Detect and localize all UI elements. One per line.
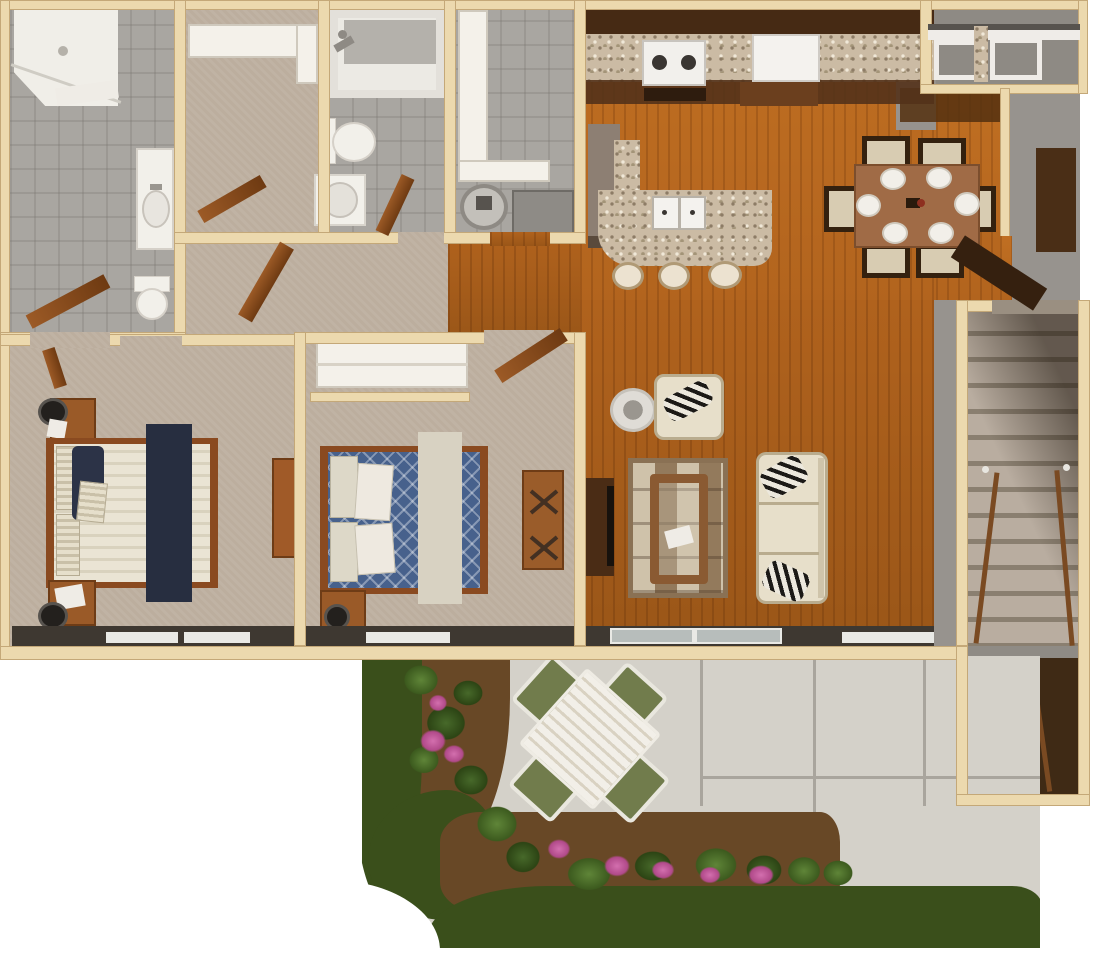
wall-stair-left-lower <box>956 646 968 806</box>
paver-joint-v3 <box>923 656 926 806</box>
wall-laundry-kitchen <box>574 0 586 244</box>
plate-3 <box>856 194 881 217</box>
master-window-1 <box>106 632 178 643</box>
sofa-seat-line-1 <box>759 502 819 505</box>
laundry-shelf-low <box>458 160 550 182</box>
staircase-shadow <box>968 310 1078 646</box>
paver-joint-h1 <box>700 776 1040 779</box>
hall-bath-tub-water <box>344 20 436 64</box>
living-slider-frame <box>692 628 697 644</box>
shrub-12 <box>448 676 488 710</box>
master-knit-pillow <box>76 481 108 524</box>
master-pillow-cream-2 <box>56 514 80 576</box>
cabinet-under-fridge <box>740 82 818 106</box>
garden-grass-bottom <box>428 886 1042 948</box>
stair-handrail-left-cap <box>982 466 989 473</box>
plate-2 <box>926 167 952 189</box>
master-toilet-bowl <box>136 288 168 320</box>
shrub-13 <box>818 856 858 890</box>
doorway-laundry <box>490 232 550 246</box>
shrub-6 <box>500 836 546 878</box>
bedroom2-desk <box>522 470 564 570</box>
sofa-backrest-line <box>818 458 824 598</box>
flowers-3 <box>544 836 574 862</box>
master-bath-sink <box>142 190 170 228</box>
master-notepad <box>47 419 68 440</box>
wall-stair-bottom <box>956 794 1090 806</box>
flowers-2 <box>440 742 468 766</box>
wall-masterbath-right <box>174 0 186 342</box>
plate-1 <box>880 168 906 190</box>
wall-closet2-bottom <box>310 392 470 402</box>
wall-bedroom2-right <box>574 332 586 646</box>
washer-door <box>476 196 492 210</box>
floor-plan-rendering <box>0 0 1094 960</box>
master-window-2 <box>184 632 250 643</box>
bedroom2-window <box>366 632 450 643</box>
wall-left <box>0 0 10 660</box>
flowers-6 <box>744 862 778 888</box>
wall-bedrooms-divider <box>294 332 306 646</box>
table-centerpiece-red <box>917 199 925 207</box>
plate-5 <box>882 222 908 244</box>
bar-stool-2 <box>658 262 690 290</box>
white-cover-bottom-right <box>1040 800 1094 960</box>
bedroom2-closet-shelf-line <box>316 363 468 366</box>
flowers-8 <box>696 864 724 886</box>
bedroom2-pillow-pattern-1 <box>354 463 394 521</box>
island-sink-drain-left <box>662 210 667 215</box>
bedroom2-pillow-pattern-2 <box>354 523 395 576</box>
tv-panel <box>607 486 614 566</box>
plate-6 <box>928 222 954 244</box>
stove-burner-right <box>681 55 696 70</box>
stair-handrail-right-cap <box>1063 464 1070 471</box>
balcony-pillar <box>974 26 988 82</box>
hallway-floor <box>182 238 448 344</box>
balcony-rail-frame-right <box>990 38 1042 80</box>
stove-burner-left <box>652 55 667 70</box>
doorway-hallbath <box>398 232 444 246</box>
dryer <box>512 190 574 234</box>
shower-drain <box>58 46 68 56</box>
wall-bottom-main <box>0 646 958 660</box>
bedroom2-bed-runner <box>418 432 462 604</box>
dining-chair-south-1 <box>862 244 910 278</box>
island-sink-divider <box>678 196 681 230</box>
refrigerator <box>752 34 820 82</box>
master-bath-faucet <box>150 184 162 190</box>
master-bed-runner-navy <box>146 424 192 602</box>
flowers-5 <box>648 858 678 882</box>
master-closet-shelf-side <box>296 24 318 84</box>
hall-bath-shower-head <box>338 30 347 39</box>
doorway-masterbath <box>30 332 110 348</box>
flowers-4 <box>600 852 634 880</box>
shrub-4 <box>448 760 494 800</box>
wall-stair-left <box>956 300 968 646</box>
island-sink-drain-right <box>690 210 695 215</box>
paver-joint-v1 <box>700 656 703 806</box>
wall-balcony-left <box>920 0 932 92</box>
wall-closet-hallbath <box>318 0 330 240</box>
round-side-table <box>610 388 656 432</box>
living-window <box>842 632 934 643</box>
entry-dark-mat <box>1036 148 1076 252</box>
sofa-seat-line-2 <box>759 552 819 555</box>
laundry-shelf-left <box>458 10 488 166</box>
wall-balcony-right <box>1078 0 1088 94</box>
white-strip-bottom <box>340 948 1094 960</box>
plate-4 <box>954 192 980 216</box>
flowers-7 <box>426 692 450 714</box>
corridor-wood-floor <box>448 238 586 338</box>
doorway-masterbed <box>120 336 182 348</box>
wall-hallbath-laundry <box>444 0 456 240</box>
wall-stair-right <box>1078 300 1090 806</box>
hall-toilet-bowl <box>332 122 376 162</box>
bar-stool-1 <box>612 262 644 290</box>
stove-drawer <box>644 88 706 101</box>
bar-stool-3 <box>708 261 742 289</box>
